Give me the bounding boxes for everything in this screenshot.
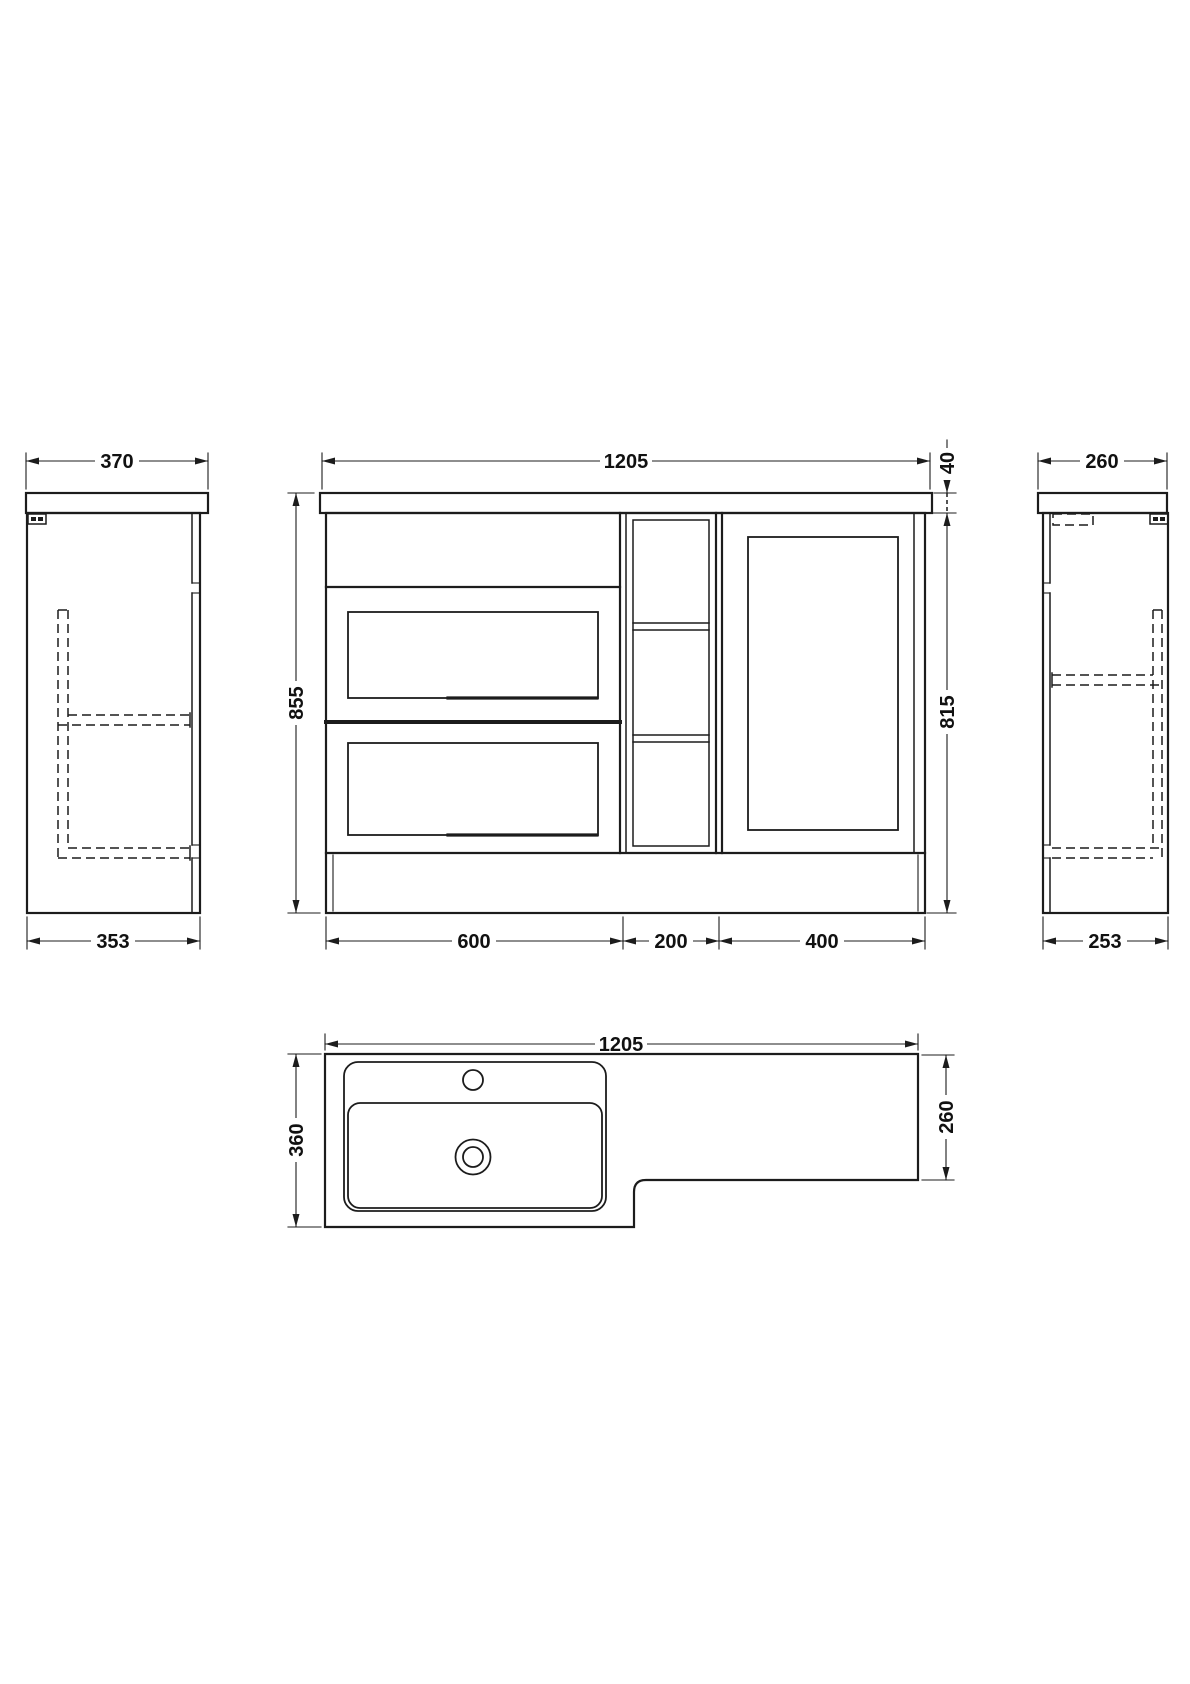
left-side-view: 370 [26,451,208,953]
left-view-worktop [26,493,208,513]
dim-plan-right-depth: 260 [922,1055,958,1180]
tap-hole-icon [463,1070,483,1090]
wall-bracket-icon [28,514,46,524]
plan-view: 1205 360 2 [286,1034,958,1227]
dim-worktop-thickness: 40 [927,440,959,526]
dim-label-815: 815 [937,695,959,728]
dim-label-200: 200 [654,931,687,953]
drawer-2-panel [348,612,598,698]
right-view-cabinet [1043,513,1168,913]
basin-bowl [348,1103,602,1208]
dim-label-260-plan: 260 [936,1100,958,1133]
dim-plan-left-depth: 360 [286,1054,321,1227]
dim-label-253: 253 [1088,931,1121,953]
dim-left-worktop-depth: 370 [26,451,208,489]
dim-label-855: 855 [286,686,308,719]
front-view: 1205 [286,440,959,953]
shelf-cavity [633,520,709,846]
wall-bracket-icon [1150,514,1168,524]
dim-total-height: 855 [286,493,320,913]
drawing-canvas: 370 [0,0,1190,1684]
left-view-front-face [192,513,200,913]
dim-label-1205-front: 1205 [604,451,649,473]
hidden-basin-edge [1053,514,1093,525]
dim-label-370: 370 [100,451,133,473]
dim-label-1205-plan: 1205 [599,1034,644,1056]
right-side-view: 260 [1038,451,1168,953]
dim-left-cabinet-depth: 353 [27,917,200,953]
waste-outer-icon [456,1140,491,1175]
dim-label-400: 400 [805,931,838,953]
drawing-page: 370 [0,0,1190,1684]
dim-unit-widths: 600 200 400 [326,917,925,953]
door-unit [748,537,898,830]
plan-worktop-outline [325,1054,918,1227]
dim-label-600: 600 [457,931,490,953]
dim-label-353: 353 [96,931,129,953]
left-view-hidden-detail-lines [58,610,190,860]
dim-plan-width: 1205 [325,1034,918,1056]
dim-label-260-side: 260 [1085,451,1118,473]
dim-front-width: 1205 [322,451,930,489]
dim-label-40: 40 [937,452,959,474]
front-worktop [320,493,932,513]
door-panel [748,537,898,830]
drawer-3-panel [348,743,598,835]
left-view-cabinet [27,513,200,913]
front-section-dividers [620,513,914,853]
drawer-stack [326,587,620,835]
basin-rim [344,1062,606,1211]
dim-right-cabinet-depth: 253 [1043,917,1168,953]
dim-label-360: 360 [286,1123,308,1156]
waste-inner-icon [463,1147,483,1167]
right-view-worktop [1038,493,1167,513]
dim-cabinet-height: 815 [927,513,959,913]
dim-right-worktop-depth: 260 [1038,451,1167,489]
plinth [326,853,925,911]
right-view-hidden-detail-lines [1052,610,1162,858]
open-shelf-unit [633,520,709,846]
basin [344,1062,606,1211]
